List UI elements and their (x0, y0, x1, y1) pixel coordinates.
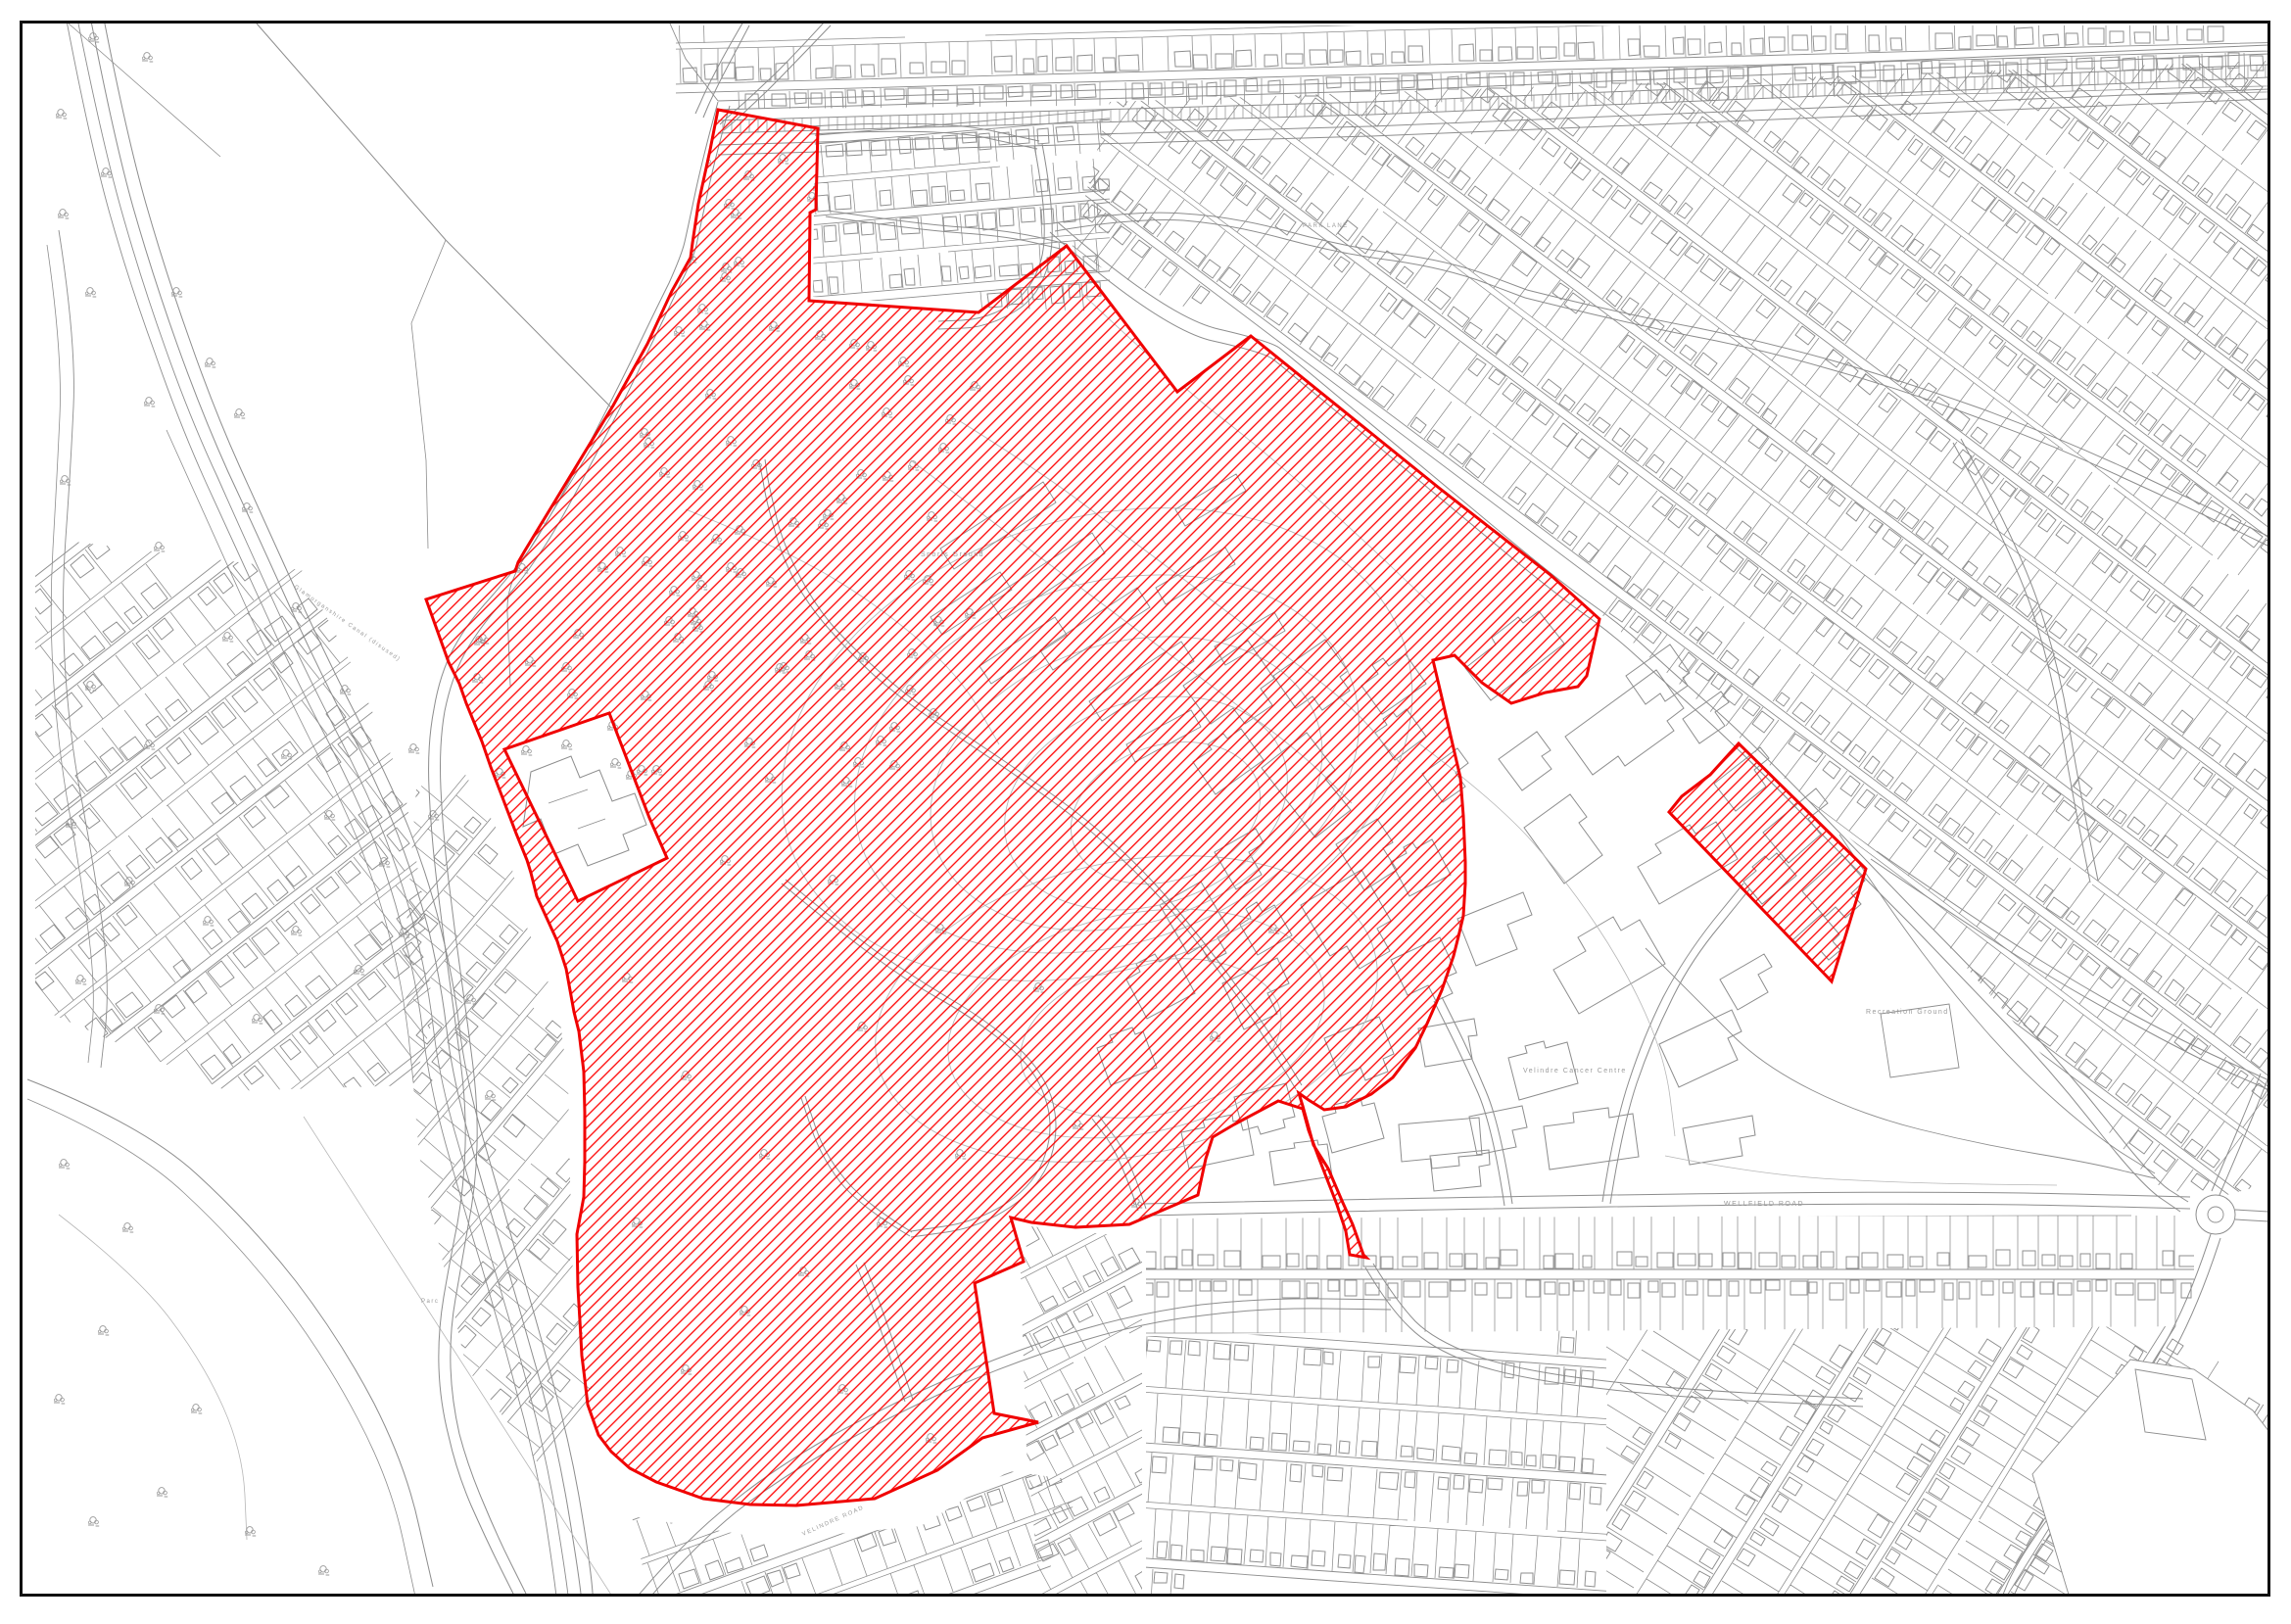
svg-text:Sports Ground: Sports Ground (921, 551, 984, 558)
svg-text:Recreation Ground: Recreation Ground (1866, 1009, 1949, 1016)
svg-text:Parc: Parc (421, 1299, 439, 1305)
svg-text:WELLFIELD ROAD: WELLFIELD ROAD (1724, 1201, 1804, 1208)
svg-text:Velindre Cancer Centre: Velindre Cancer Centre (1523, 1068, 1627, 1075)
svg-text:PARK LANE: PARK LANE (1303, 223, 1349, 229)
